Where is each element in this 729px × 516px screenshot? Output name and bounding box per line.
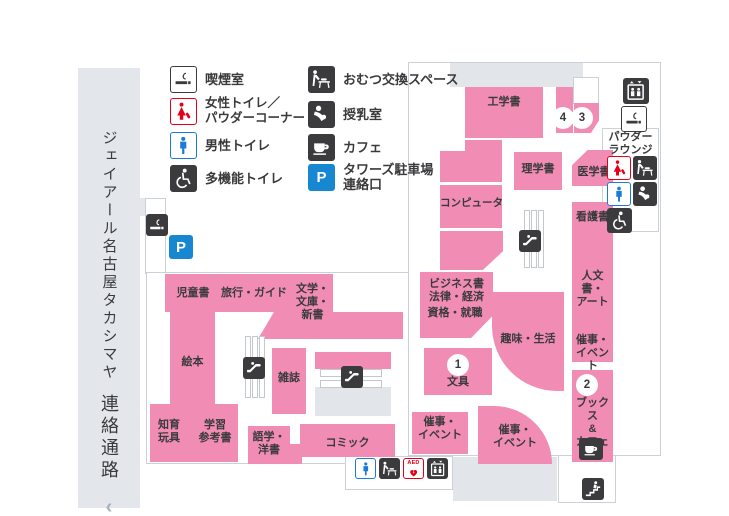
men-toilet-icon xyxy=(170,132,197,159)
label-saiji-right: 催事・ イベント xyxy=(572,334,613,373)
label-jidosho: 児童書 xyxy=(168,287,218,300)
section-computer-top xyxy=(440,151,502,182)
label-powder-lounge: パウダー ラウンジ xyxy=(604,131,657,157)
label-saiji-center: 催事・ イベント xyxy=(478,424,552,450)
top-gray-strip xyxy=(450,63,583,87)
diaper-change-icon xyxy=(633,156,657,180)
diaper-change-icon xyxy=(308,66,335,93)
label-saiji-small: 催事・ イベント xyxy=(412,416,468,442)
label-business: ビジネス書 法律・経済 xyxy=(420,278,493,304)
escalator-icon xyxy=(341,366,363,388)
label-gogaku: 語学・ 洋書 xyxy=(248,431,290,457)
legend-label-cafe: カフェ xyxy=(343,140,382,155)
chevron-left-icon: ‹ xyxy=(106,496,113,516)
label-shikaku: 資格・就職 xyxy=(420,307,490,320)
legend-label-women: 女性トイレ／ パウダーコーナー xyxy=(205,96,305,126)
label-shumi: 趣味・生活 xyxy=(492,333,564,346)
cafe-icon xyxy=(579,438,603,460)
label-rigaku: 理学書 xyxy=(514,163,562,176)
label-chiiku: 知育 玩具 xyxy=(151,419,187,445)
cafe-icon xyxy=(308,134,335,161)
women-toilet-icon xyxy=(607,156,631,180)
aed-icon: AED xyxy=(403,458,424,479)
nursing-room-icon xyxy=(633,182,657,206)
label-ryoko: 旅行・ガイド xyxy=(218,287,290,300)
parking-letter: P xyxy=(316,169,326,186)
smoking-room-icon xyxy=(146,214,168,236)
smoking-room-icon xyxy=(621,106,647,132)
women-toilet-icon xyxy=(170,98,197,125)
top-notch-box xyxy=(573,77,599,104)
section-kogaku xyxy=(465,87,543,138)
corridor-floor xyxy=(145,198,166,274)
accessible-toilet-icon xyxy=(170,165,197,192)
label-zasshi: 雑誌 xyxy=(272,372,306,385)
elevator-icon xyxy=(623,78,649,104)
label-computer: コンピュータ xyxy=(440,197,503,210)
passage-label: 連絡通路 xyxy=(96,394,122,482)
legend-label-diaper: おむつ交換スペース xyxy=(343,72,458,87)
label-gakushu: 学習 参考書 xyxy=(189,419,241,445)
floor-map-canvas: ジェイアール名古屋タカシマヤ 連絡通路 ‹ 喫煙室 女性トイレ／ パウダーコーナ… xyxy=(0,0,729,516)
marker-circle-2: 2 xyxy=(576,374,598,396)
legend-label-smoking: 喫煙室 xyxy=(205,72,244,87)
men-toilet-icon xyxy=(607,182,631,206)
escalator-icon xyxy=(243,357,265,379)
nursing-room-icon xyxy=(308,101,335,128)
smoking-room-icon xyxy=(170,66,197,93)
legend-label-accessible: 多機能トイレ xyxy=(205,171,283,186)
diaper-change-icon xyxy=(379,458,400,479)
label-kogaku: 工学書 xyxy=(465,96,543,109)
parking-letter: P xyxy=(176,239,186,256)
label-jinbun: 人文書・ アート xyxy=(572,270,613,309)
towers-parking-icon: P xyxy=(308,164,335,191)
legend-label-nursing: 授乳室 xyxy=(343,107,382,122)
label-bungaku: 文学・ 文庫・ 新書 xyxy=(292,283,333,322)
legend-label-parking: タワーズ駐車場 連絡口 xyxy=(343,162,433,192)
label-ehon: 絵本 xyxy=(170,356,215,369)
label-bungu: 文具 xyxy=(424,376,492,389)
towers-parking-icon: P xyxy=(169,235,193,259)
marker-circle-1: 1 xyxy=(447,354,469,376)
men-toilet-icon xyxy=(355,458,376,479)
marker-circle-3: 3 xyxy=(571,107,593,129)
legend-label-men: 男性トイレ xyxy=(205,138,270,153)
accessible-toilet-icon xyxy=(607,208,632,233)
stairs-icon xyxy=(582,478,604,500)
center-gray-block xyxy=(315,387,391,416)
elevator-icon xyxy=(427,458,448,479)
passage-band: ジェイアール名古屋タカシマヤ 連絡通路 ‹ xyxy=(78,68,140,508)
label-comic: コミック xyxy=(300,437,395,450)
passage-building-label: ジェイアール名古屋タカシマヤ xyxy=(99,130,120,382)
escalator-icon xyxy=(519,230,541,252)
